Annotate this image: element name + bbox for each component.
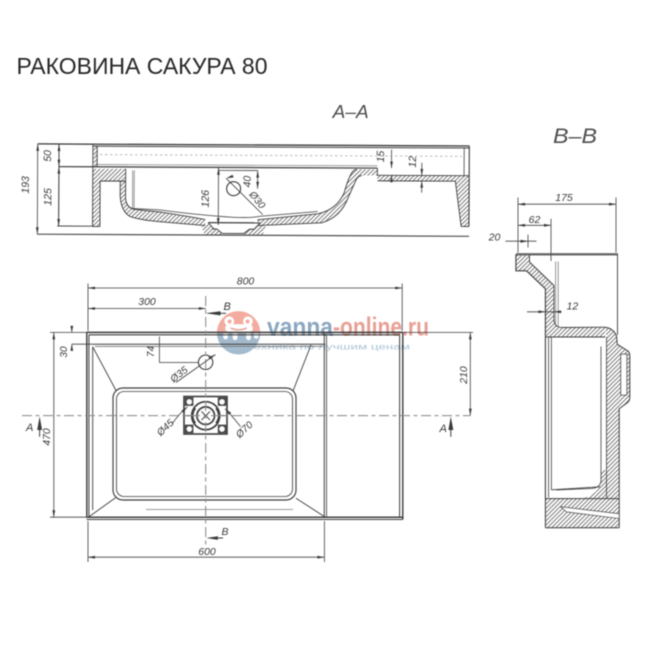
svg-text:175: 175 [555, 192, 573, 204]
svg-text:vanna: vanna [267, 312, 333, 342]
svg-text:РАКОВИНА САКУРА 80: РАКОВИНА САКУРА 80 [17, 53, 268, 79]
svg-text:50: 50 [42, 150, 54, 162]
svg-text:600: 600 [198, 546, 216, 558]
svg-text:30: 30 [59, 346, 70, 358]
svg-text:300: 300 [138, 296, 156, 308]
svg-text:-online.ru: -online.ru [333, 312, 429, 342]
svg-text:20: 20 [488, 232, 501, 244]
svg-text:126: 126 [200, 190, 212, 208]
svg-text:А–А: А–А [332, 101, 369, 122]
svg-text:А: А [25, 422, 33, 434]
svg-text:62: 62 [529, 214, 541, 226]
svg-text:В: В [222, 526, 229, 538]
svg-text:12: 12 [567, 301, 579, 313]
svg-text:В: В [224, 301, 231, 313]
svg-text:74: 74 [146, 346, 157, 358]
svg-text:В–В: В–В [553, 125, 597, 148]
svg-text:15: 15 [375, 151, 387, 163]
svg-text:210: 210 [458, 366, 470, 385]
svg-text:470: 470 [41, 428, 53, 446]
svg-text:40: 40 [242, 176, 254, 188]
svg-text:193: 193 [20, 176, 32, 194]
svg-text:А: А [439, 423, 447, 435]
svg-text:800: 800 [237, 276, 255, 288]
svg-text:125: 125 [42, 188, 54, 206]
svg-text:12: 12 [407, 156, 419, 168]
